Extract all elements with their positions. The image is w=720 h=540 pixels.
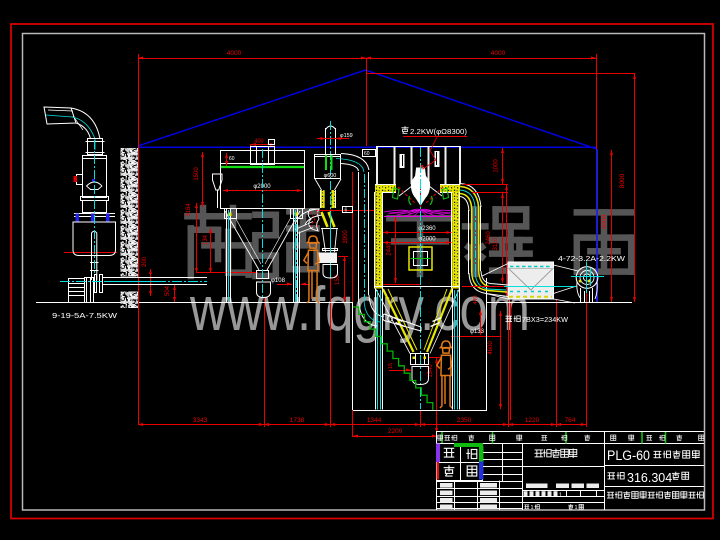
svg-text:PLG-60: PLG-60	[607, 448, 650, 463]
svg-text:134: 134	[203, 234, 209, 245]
svg-text:2350: 2350	[457, 417, 472, 424]
svg-text:1: 1	[531, 505, 534, 511]
svg-text:3900: 3900	[343, 230, 349, 244]
svg-text:7BX3=234KW: 7BX3=234KW	[522, 317, 568, 324]
svg-text:440: 440	[473, 295, 479, 304]
svg-text:316.304: 316.304	[627, 471, 672, 485]
svg-text:1344: 1344	[367, 417, 382, 424]
svg-text:φ2000: φ2000	[418, 237, 436, 243]
svg-text:φ108: φ108	[271, 278, 286, 284]
svg-text:1738: 1738	[290, 417, 305, 424]
svg-text:9-19-5A-7.5KW: 9-19-5A-7.5KW	[52, 311, 118, 320]
svg-text:3343: 3343	[193, 417, 208, 424]
svg-text:60: 60	[229, 156, 235, 162]
svg-text:2460: 2460	[486, 231, 492, 245]
svg-text:φ2360: φ2360	[418, 226, 436, 232]
svg-text:4-72-3.2A-2.2KW: 4-72-3.2A-2.2KW	[558, 254, 626, 263]
svg-text:1000: 1000	[494, 159, 500, 173]
svg-text:1: 1	[559, 493, 562, 499]
svg-text:1220: 1220	[525, 417, 540, 424]
svg-text:8000: 8000	[619, 173, 626, 188]
svg-text:60: 60	[364, 151, 370, 157]
svg-text:504: 504	[165, 285, 171, 296]
svg-text:3110: 3110	[493, 237, 499, 251]
svg-text:2200: 2200	[388, 428, 403, 435]
svg-text:1500: 1500	[194, 167, 200, 181]
svg-text:15: 15	[388, 363, 394, 369]
svg-text:4000: 4000	[227, 50, 242, 57]
svg-text:3154: 3154	[186, 203, 192, 217]
svg-text:400: 400	[254, 139, 263, 145]
svg-text:200: 200	[142, 256, 148, 267]
svg-text:4600: 4600	[488, 341, 494, 355]
svg-text:φ159: φ159	[340, 133, 353, 139]
svg-text:2.2KW(φΩ8300): 2.2KW(φΩ8300)	[410, 127, 468, 136]
svg-text:4000: 4000	[491, 50, 506, 57]
svg-text:φ600: φ600	[324, 173, 337, 179]
svg-text:764: 764	[565, 417, 576, 424]
svg-text:4000: 4000	[601, 214, 608, 229]
svg-text:1: 1	[575, 505, 578, 511]
svg-text:2440: 2440	[387, 242, 393, 256]
svg-text:6: 6	[345, 208, 348, 214]
svg-text:φ133: φ133	[470, 329, 485, 335]
